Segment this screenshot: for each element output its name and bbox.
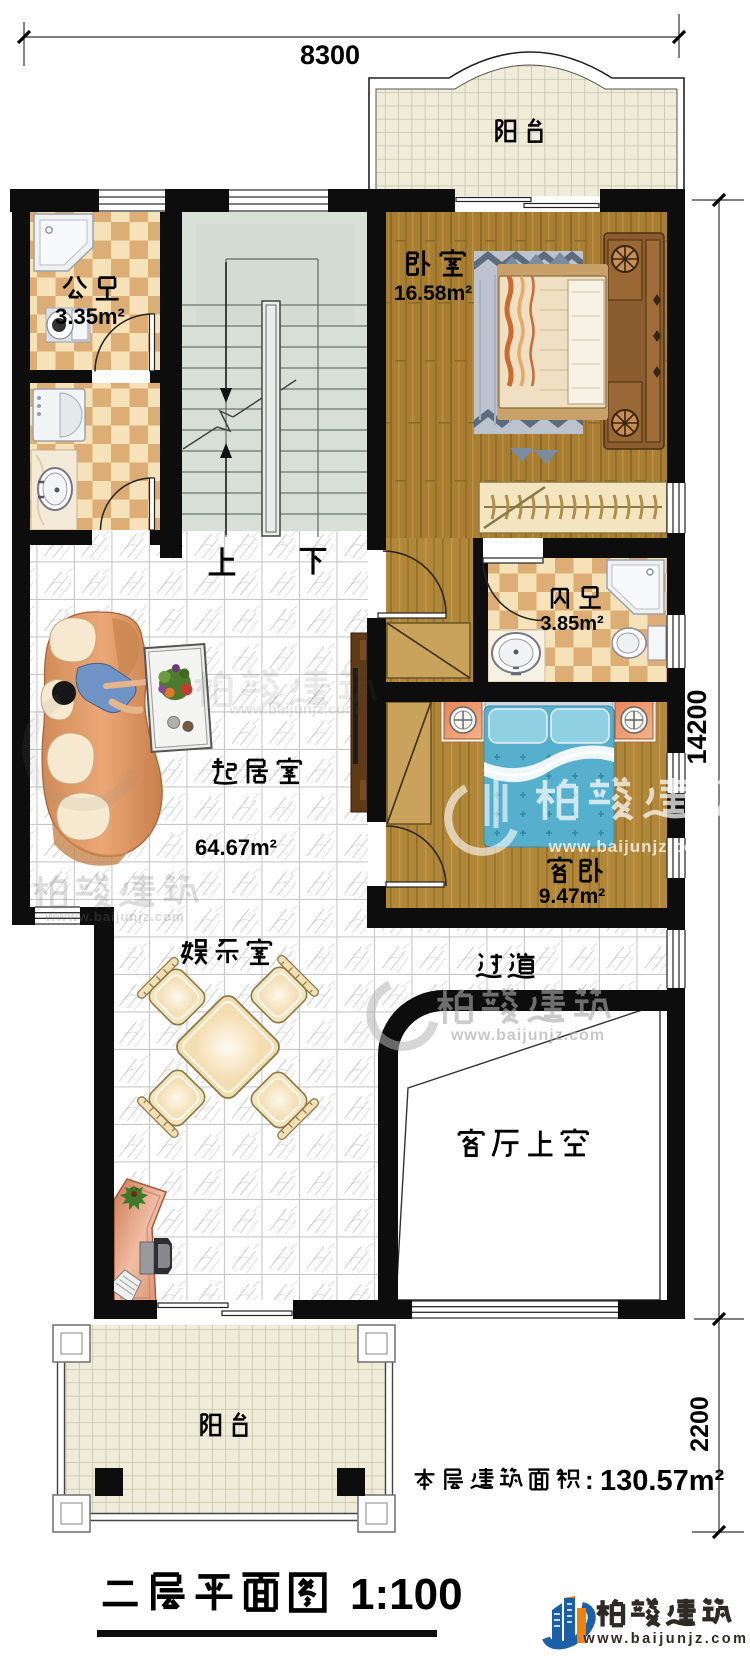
svg-text:www.baijunjz.com: www.baijunjz.com — [450, 1027, 605, 1044]
svg-text:64.67m²: 64.67m² — [195, 835, 277, 860]
svg-text:wwww.baijunjz.com: wwww.baijunjz.com — [44, 909, 184, 924]
svg-text:1:100: 1:100 — [350, 1570, 463, 1619]
svg-text:2200: 2200 — [686, 1396, 714, 1452]
svg-text:3.85m²: 3.85m² — [540, 613, 604, 635]
svg-text:130.57m²: 130.57m² — [600, 1465, 724, 1497]
svg-text:9.47m²: 9.47m² — [539, 885, 606, 908]
svg-text:8300: 8300 — [300, 40, 360, 70]
svg-text:www.baijunjz.com: www.baijunjz.com — [548, 837, 712, 856]
svg-text:www.baijunjz.com: www.baijunjz.com — [582, 1631, 748, 1647]
svg-text:16.58m²: 16.58m² — [394, 282, 472, 305]
svg-text:3.35m²: 3.35m² — [55, 304, 125, 329]
svg-text:www.baijunjz.com: www.baijunjz.com — [228, 701, 358, 718]
svg-text::: : — [585, 1465, 594, 1495]
svg-text:14200: 14200 — [682, 689, 712, 764]
